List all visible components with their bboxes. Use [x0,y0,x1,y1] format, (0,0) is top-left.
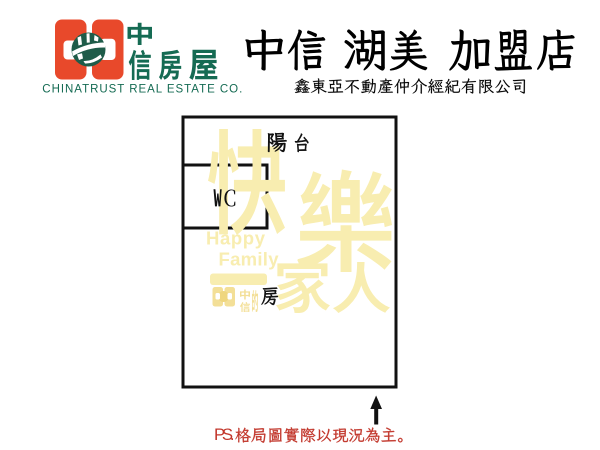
svg-text:Family: Family [219,249,280,270]
svg-text:CHINATRUST REAL ESTATE CO.: CHINATRUST REAL ESTATE CO. [42,84,242,96]
svg-text:PS.: PS. [214,425,235,444]
svg-text:Happy: Happy [206,228,266,249]
